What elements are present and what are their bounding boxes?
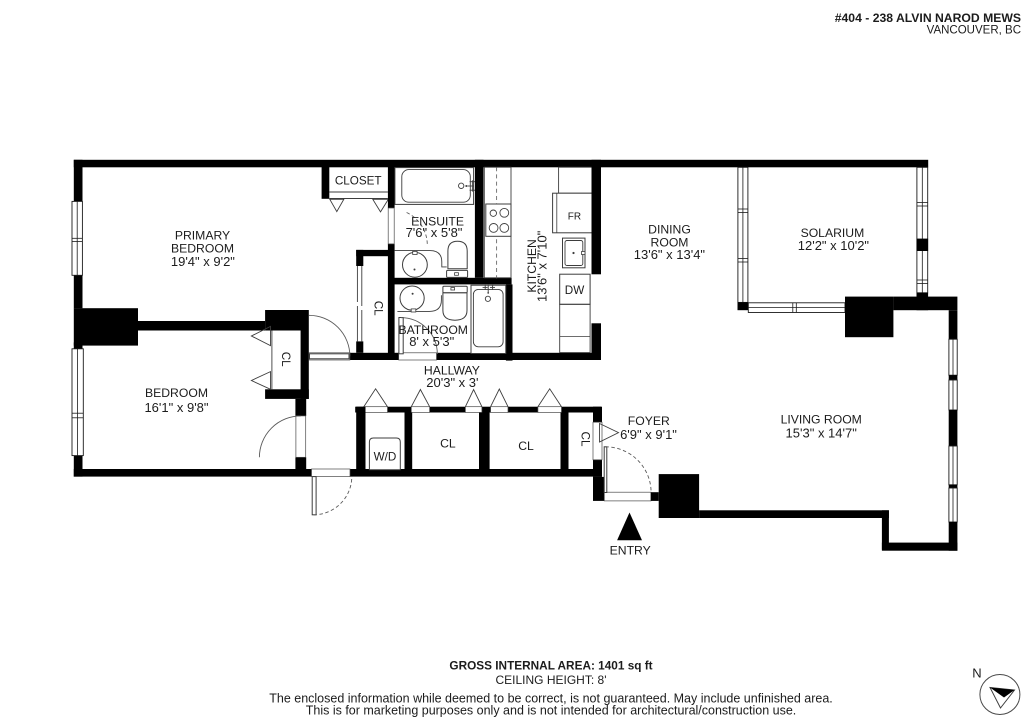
svg-text:CL: CL	[440, 437, 456, 451]
svg-text:CL: CL	[578, 432, 591, 447]
svg-text:CL: CL	[279, 352, 292, 367]
svg-text:ENTRY: ENTRY	[610, 544, 651, 558]
svg-text:BEDROOM: BEDROOM	[145, 386, 208, 400]
svg-text:#404 - 238 ALVIN NAROD MEWS: #404 - 238 ALVIN NAROD MEWS	[835, 11, 1021, 25]
svg-text:19'4" x 9'2": 19'4" x 9'2"	[171, 254, 235, 269]
svg-text:CL: CL	[518, 439, 534, 453]
svg-text:This is for marketing purposes: This is for marketing purposes only and …	[306, 704, 797, 718]
svg-text:7'6" x 5'8": 7'6" x 5'8"	[406, 225, 463, 240]
svg-text:8' x 5'3": 8' x 5'3"	[409, 334, 454, 349]
svg-text:13'6" x 7'10": 13'6" x 7'10"	[534, 230, 549, 302]
svg-text:GROSS INTERNAL AREA: 1401 sq f: GROSS INTERNAL AREA: 1401 sq ft	[449, 659, 652, 673]
svg-text:CLOSET: CLOSET	[335, 175, 382, 188]
svg-text:6'9" x 9'1": 6'9" x 9'1"	[620, 427, 677, 442]
svg-text:LIVING ROOM: LIVING ROOM	[781, 413, 862, 427]
svg-text:PRIMARY: PRIMARY	[175, 229, 230, 243]
svg-text:15'3" x 14'7": 15'3" x 14'7"	[786, 426, 858, 441]
svg-text:N: N	[972, 666, 981, 681]
svg-text:DW: DW	[565, 284, 584, 297]
svg-text:VANCOUVER, BC: VANCOUVER, BC	[927, 25, 1021, 37]
svg-text:FR: FR	[568, 211, 581, 222]
svg-text:W/D: W/D	[374, 450, 397, 463]
svg-text:CEILING HEIGHT: 8': CEILING HEIGHT: 8'	[496, 673, 607, 687]
svg-text:20'3" x 3': 20'3" x 3'	[426, 375, 478, 390]
svg-text:12'2" x 10'2": 12'2" x 10'2"	[798, 238, 870, 253]
svg-text:CL: CL	[371, 301, 384, 316]
svg-text:13'6" x 13'4": 13'6" x 13'4"	[634, 247, 706, 262]
svg-text:16'1" x 9'8": 16'1" x 9'8"	[144, 400, 208, 415]
